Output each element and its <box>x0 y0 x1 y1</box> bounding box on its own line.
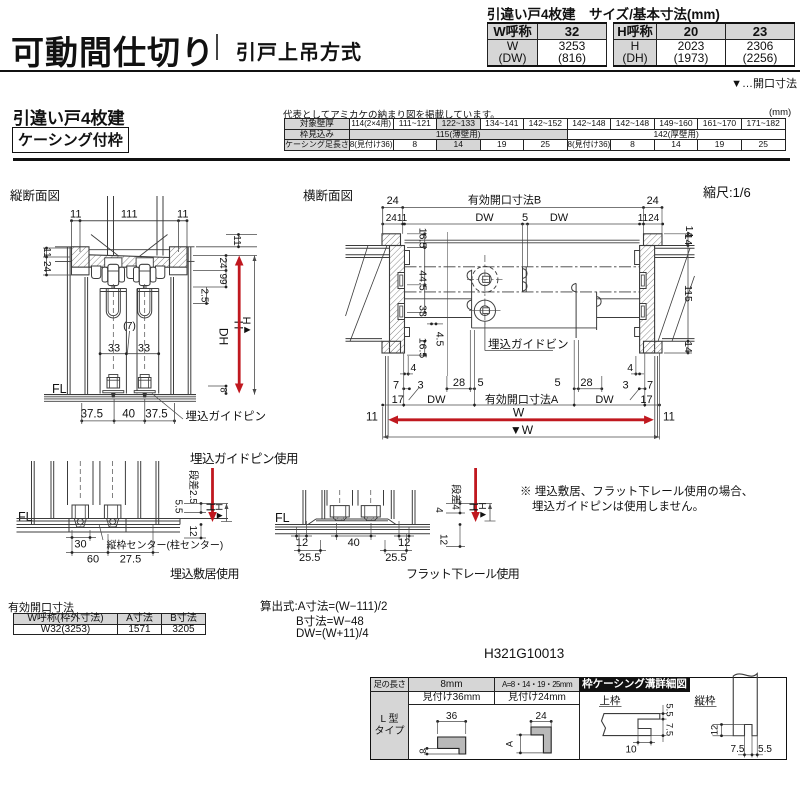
svg-text:8: 8 <box>219 387 229 392</box>
svg-text:44.5: 44.5 <box>417 270 429 291</box>
svg-text:3: 3 <box>622 379 628 391</box>
svg-text:縦枠: 縦枠 <box>695 694 716 707</box>
svg-text:17: 17 <box>392 394 404 406</box>
svg-text:埋込ガイドピン: 埋込ガイドピン <box>186 410 267 423</box>
svg-text:段差2.5: 段差2.5 <box>187 470 200 504</box>
svg-text:DW: DW <box>595 394 614 406</box>
svg-text:24: 24 <box>387 195 399 207</box>
svg-text:37.5: 37.5 <box>145 409 167 421</box>
svg-text:DH: DH <box>217 328 231 345</box>
svg-text:24: 24 <box>647 195 659 207</box>
svg-text:FL: FL <box>18 510 33 524</box>
svg-text:111: 111 <box>121 209 138 221</box>
svg-text:埋込ガイドビン: 埋込ガイドビン <box>488 338 569 351</box>
svg-text:11: 11 <box>663 412 675 424</box>
svg-text:25.5: 25.5 <box>385 552 406 564</box>
svg-text:W: W <box>513 406 525 420</box>
svg-text:FL: FL <box>52 382 67 396</box>
svg-text:1124: 1124 <box>638 213 660 224</box>
svg-text:115: 115 <box>682 285 694 302</box>
svg-text:FL: FL <box>275 511 290 525</box>
svg-text:99: 99 <box>217 273 228 285</box>
svg-text:4.5: 4.5 <box>434 332 446 347</box>
svg-text:DW: DW <box>475 212 494 224</box>
svg-text:24: 24 <box>41 261 52 273</box>
svg-text:27.5: 27.5 <box>120 554 141 566</box>
svg-text:上枠: 上枠 <box>600 694 621 707</box>
svg-text:37.5: 37.5 <box>81 409 103 421</box>
svg-text:7: 7 <box>393 379 399 391</box>
svg-text:12: 12 <box>398 537 410 549</box>
svg-text:5.5: 5.5 <box>664 703 675 716</box>
svg-text:12: 12 <box>296 537 308 549</box>
svg-text:40: 40 <box>348 537 360 549</box>
svg-text:11: 11 <box>70 209 81 221</box>
svg-text:12: 12 <box>438 534 449 546</box>
svg-text:7.5: 7.5 <box>731 744 745 755</box>
svg-text:段差4: 段差4 <box>450 484 463 510</box>
svg-text:10: 10 <box>625 745 637 756</box>
svg-text:5: 5 <box>522 212 528 224</box>
svg-text:12: 12 <box>710 725 721 736</box>
svg-text:4: 4 <box>433 507 444 513</box>
svg-text:4: 4 <box>410 362 416 374</box>
svg-text:25.5: 25.5 <box>299 552 320 564</box>
svg-text:17: 17 <box>640 394 652 406</box>
svg-text:33: 33 <box>138 343 150 355</box>
svg-text:5: 5 <box>477 377 483 389</box>
svg-text:8: 8 <box>418 749 428 754</box>
svg-text:▼W: ▼W <box>510 423 534 437</box>
svg-text:DW: DW <box>550 212 569 224</box>
svg-text:3: 3 <box>417 379 423 391</box>
svg-text:33: 33 <box>108 343 120 355</box>
svg-text:24: 24 <box>536 711 548 722</box>
svg-text:A: A <box>505 741 515 747</box>
svg-text:40: 40 <box>122 409 135 421</box>
svg-text:7.5: 7.5 <box>664 723 675 736</box>
svg-text:14: 14 <box>682 341 694 353</box>
svg-text:縦枠センター(柱センター): 縦枠センター(柱センター) <box>107 539 224 552</box>
svg-text:14: 14 <box>682 234 694 246</box>
svg-text:33: 33 <box>417 305 429 317</box>
svg-text:2.5: 2.5 <box>199 289 210 303</box>
svg-text:▼H: ▼H <box>215 503 226 520</box>
svg-text:24: 24 <box>217 257 228 269</box>
svg-text:60: 60 <box>87 554 99 566</box>
svg-text:▼H: ▼H <box>478 502 489 519</box>
svg-text:16.5: 16.5 <box>417 338 429 359</box>
svg-text:5.5: 5.5 <box>173 500 184 514</box>
svg-text:30: 30 <box>74 539 86 551</box>
svg-text:11: 11 <box>41 247 52 258</box>
svg-text:有効開口寸法A: 有効開口寸法A <box>485 392 559 406</box>
svg-text:▼H: ▼H <box>242 317 254 336</box>
svg-text:12: 12 <box>187 525 198 537</box>
svg-text:有効開口寸法B: 有効開口寸法B <box>468 193 541 207</box>
svg-text:5.5: 5.5 <box>758 744 772 755</box>
svg-text:5: 5 <box>554 377 560 389</box>
svg-text:36: 36 <box>446 711 458 722</box>
svg-text:16.5: 16.5 <box>417 228 429 249</box>
svg-text:11: 11 <box>177 209 188 221</box>
svg-text:28: 28 <box>580 377 592 389</box>
svg-text:DW: DW <box>427 394 446 406</box>
svg-text:2411: 2411 <box>386 213 408 224</box>
svg-text:(7): (7) <box>123 320 136 332</box>
svg-text:28: 28 <box>453 377 465 389</box>
svg-text:11: 11 <box>366 412 378 424</box>
svg-text:4: 4 <box>627 362 633 374</box>
svg-text:7: 7 <box>647 379 653 391</box>
svg-text:11: 11 <box>231 235 242 246</box>
